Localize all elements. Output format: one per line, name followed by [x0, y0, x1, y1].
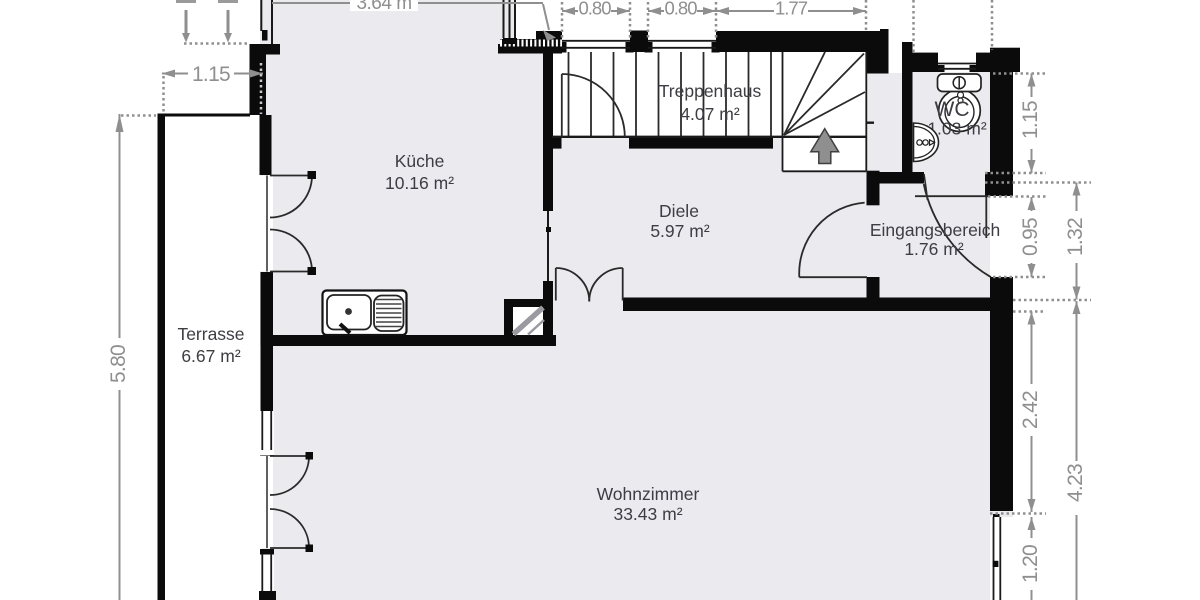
svg-text:4.07 m²: 4.07 m²	[680, 104, 739, 124]
svg-text:Diele: Diele	[659, 201, 699, 221]
svg-text:6.67 m²: 6.67 m²	[181, 346, 240, 366]
svg-text:3.64 m: 3.64 m	[356, 0, 411, 14]
svg-text:Eingangsbereich: Eingangsbereich	[870, 220, 1000, 240]
svg-text:4.23: 4.23	[1064, 464, 1087, 502]
svg-text:1.20: 1.20	[1019, 545, 1042, 583]
svg-text:0.80: 0.80	[664, 0, 697, 19]
svg-text:1.15: 1.15	[1019, 101, 1042, 139]
svg-text:10.16 m²: 10.16 m²	[385, 173, 454, 193]
svg-text:1.15: 1.15	[192, 63, 230, 86]
svg-text:Wohnzimmer: Wohnzimmer	[597, 484, 700, 504]
svg-text:Terrasse: Terrasse	[177, 324, 244, 344]
svg-text:2.42: 2.42	[1019, 391, 1042, 429]
svg-text:1.32: 1.32	[1064, 218, 1087, 256]
svg-text:Treppenhaus: Treppenhaus	[659, 81, 762, 101]
svg-text:1.76 m²: 1.76 m²	[904, 239, 963, 259]
svg-text:Küche: Küche	[395, 151, 445, 171]
svg-text:0.80: 0.80	[578, 0, 611, 19]
svg-text:0.95: 0.95	[1019, 218, 1042, 256]
svg-text:1.77: 1.77	[775, 0, 808, 19]
svg-text:5.97 m²: 5.97 m²	[650, 221, 709, 241]
svg-text:5.80: 5.80	[107, 345, 130, 383]
svg-text:33.43 m²: 33.43 m²	[613, 504, 682, 524]
